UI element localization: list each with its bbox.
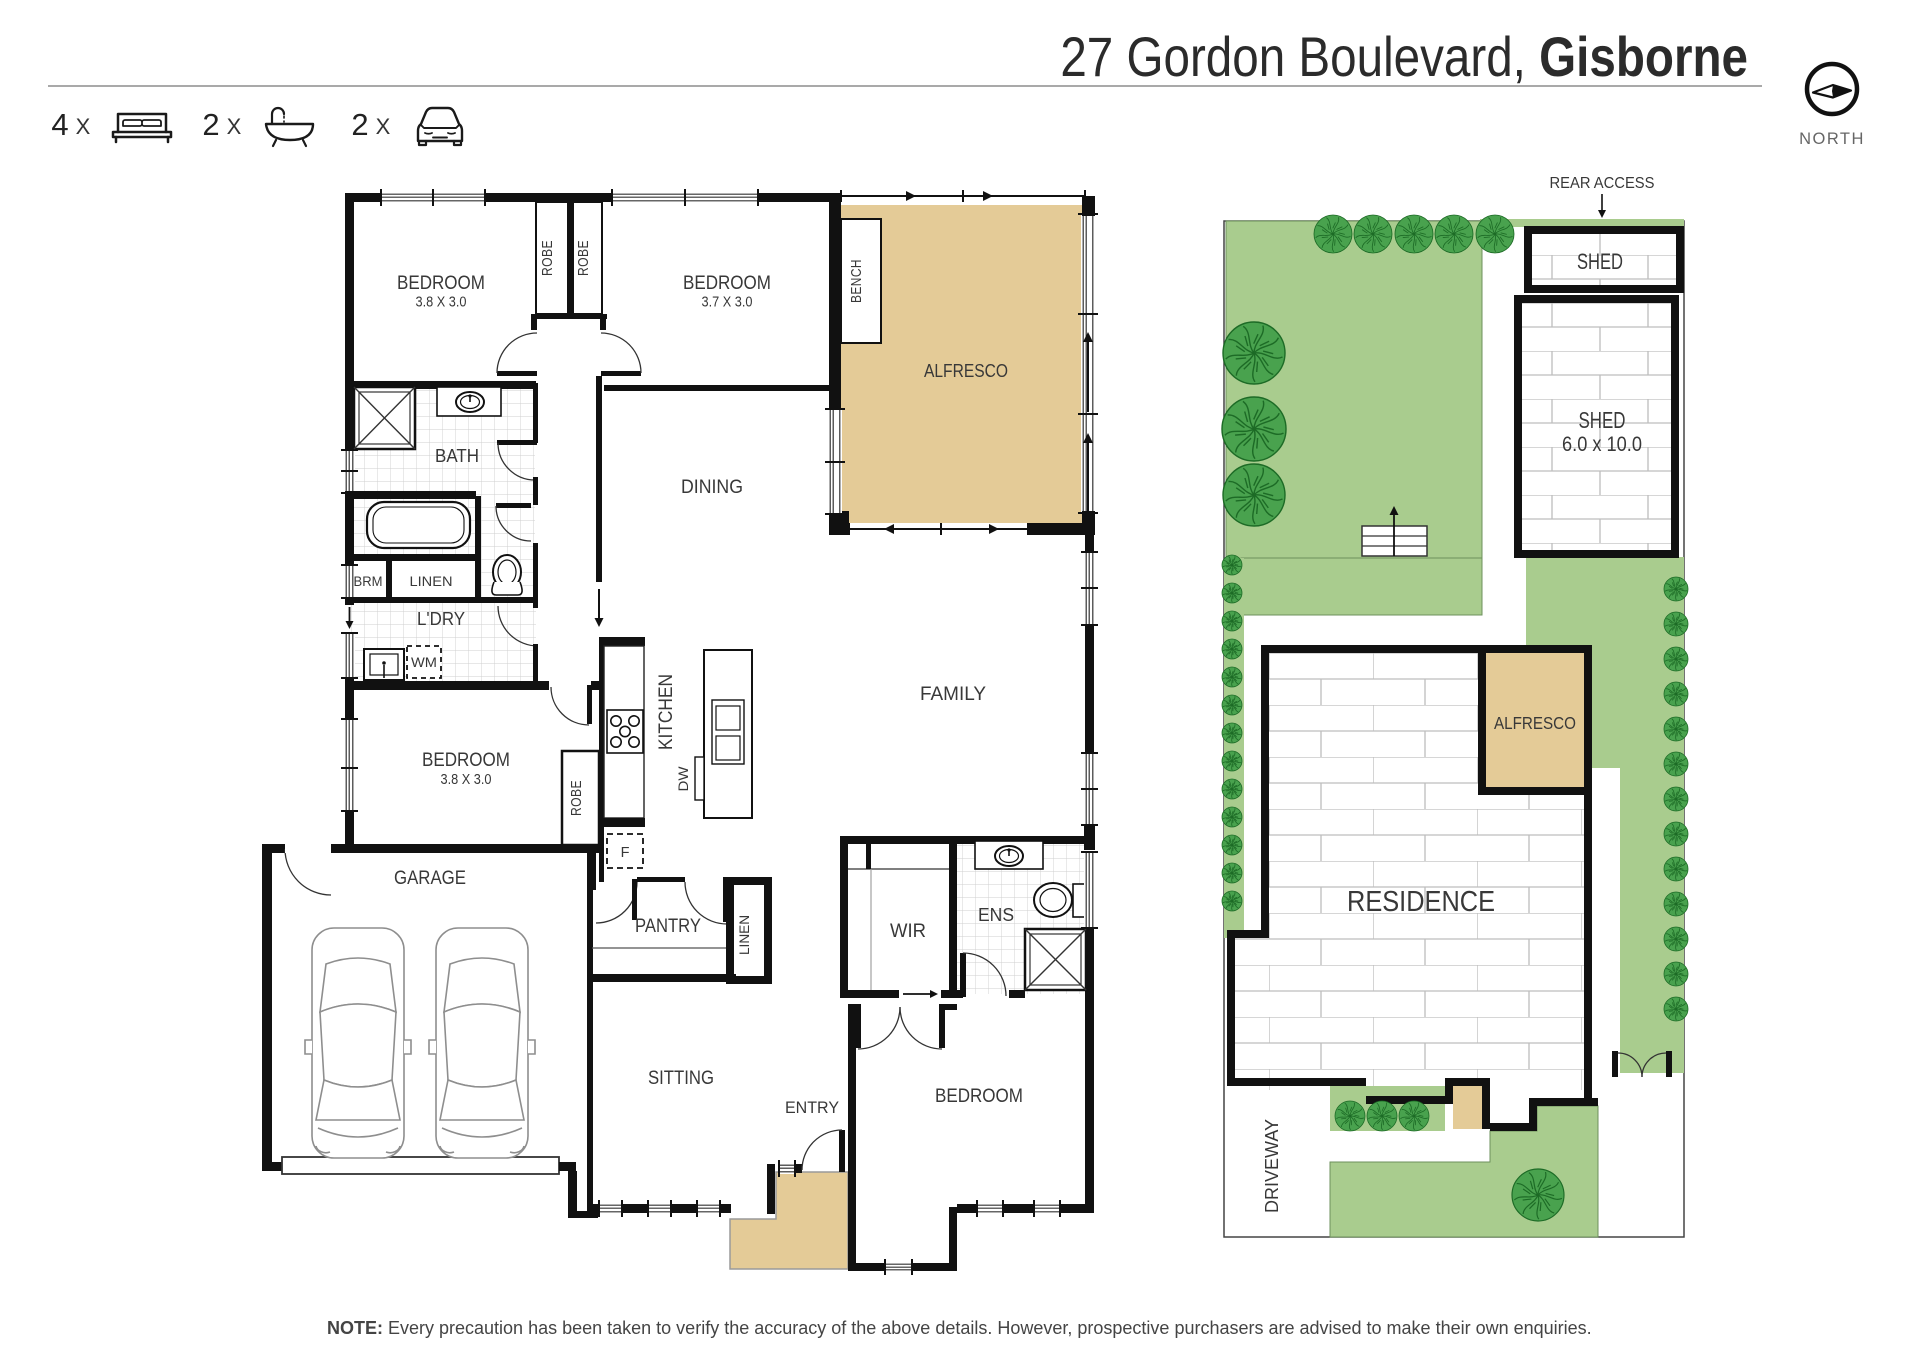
svg-text:SITTING: SITTING [648, 1068, 714, 1089]
svg-text:BATH: BATH [435, 446, 479, 466]
svg-text:BEDROOM: BEDROOM [935, 1086, 1023, 1107]
svg-text:NOTE: Every precaution has bee: NOTE: Every precaution has been taken to… [327, 1318, 1592, 1338]
svg-text:WIR: WIR [890, 921, 926, 942]
svg-text:DW: DW [676, 766, 691, 791]
svg-text:DINING: DINING [681, 477, 743, 498]
svg-text:LINEN: LINEN [737, 915, 752, 955]
svg-text:X: X [227, 114, 242, 139]
svg-text:DRIVEWAY: DRIVEWAY [1261, 1119, 1282, 1213]
svg-text:SHED: SHED [1577, 249, 1623, 274]
svg-text:F: F [621, 845, 630, 861]
svg-text:WM: WM [411, 655, 437, 670]
svg-text:BEDROOM: BEDROOM [683, 273, 771, 294]
svg-text:BEDROOM: BEDROOM [397, 273, 485, 294]
svg-text:ENS: ENS [978, 905, 1014, 925]
svg-text:ROBE: ROBE [569, 780, 585, 816]
svg-text:BENCH: BENCH [849, 259, 865, 303]
svg-text:KITCHEN: KITCHEN [656, 674, 677, 750]
svg-text:NORTH: NORTH [1799, 130, 1865, 148]
svg-text:2: 2 [202, 107, 219, 142]
svg-text:X: X [376, 114, 391, 139]
svg-text:SHED: SHED [1579, 407, 1626, 433]
svg-text:LINEN: LINEN [410, 573, 453, 589]
svg-text:3.8 X 3.0: 3.8 X 3.0 [416, 295, 467, 311]
svg-text:PANTRY: PANTRY [635, 916, 701, 937]
svg-text:REAR ACCESS: REAR ACCESS [1550, 175, 1655, 192]
svg-text:FAMILY: FAMILY [920, 684, 986, 705]
svg-text:ROBE: ROBE [576, 240, 592, 276]
svg-text:L'DRY: L'DRY [417, 609, 465, 629]
svg-text:ROBE: ROBE [540, 240, 556, 276]
svg-text:4: 4 [51, 107, 68, 142]
svg-text:27 Gordon Boulevard, Gisborne: 27 Gordon Boulevard, Gisborne [1060, 26, 1748, 88]
svg-text:3.7 X 3.0: 3.7 X 3.0 [702, 295, 753, 311]
svg-text:X: X [76, 114, 91, 139]
svg-text:3.8 X 3.0: 3.8 X 3.0 [441, 772, 492, 788]
svg-text:6.0 x 10.0: 6.0 x 10.0 [1562, 433, 1642, 456]
svg-text:BEDROOM: BEDROOM [422, 750, 510, 771]
svg-text:RESIDENCE: RESIDENCE [1347, 886, 1495, 918]
svg-text:ALFRESCO: ALFRESCO [924, 360, 1008, 381]
svg-text:ALFRESCO: ALFRESCO [1494, 713, 1576, 733]
svg-text:2: 2 [351, 107, 368, 142]
svg-text:ENTRY: ENTRY [785, 1098, 839, 1117]
svg-text:GARAGE: GARAGE [394, 868, 466, 889]
svg-text:BRM: BRM [354, 573, 383, 589]
